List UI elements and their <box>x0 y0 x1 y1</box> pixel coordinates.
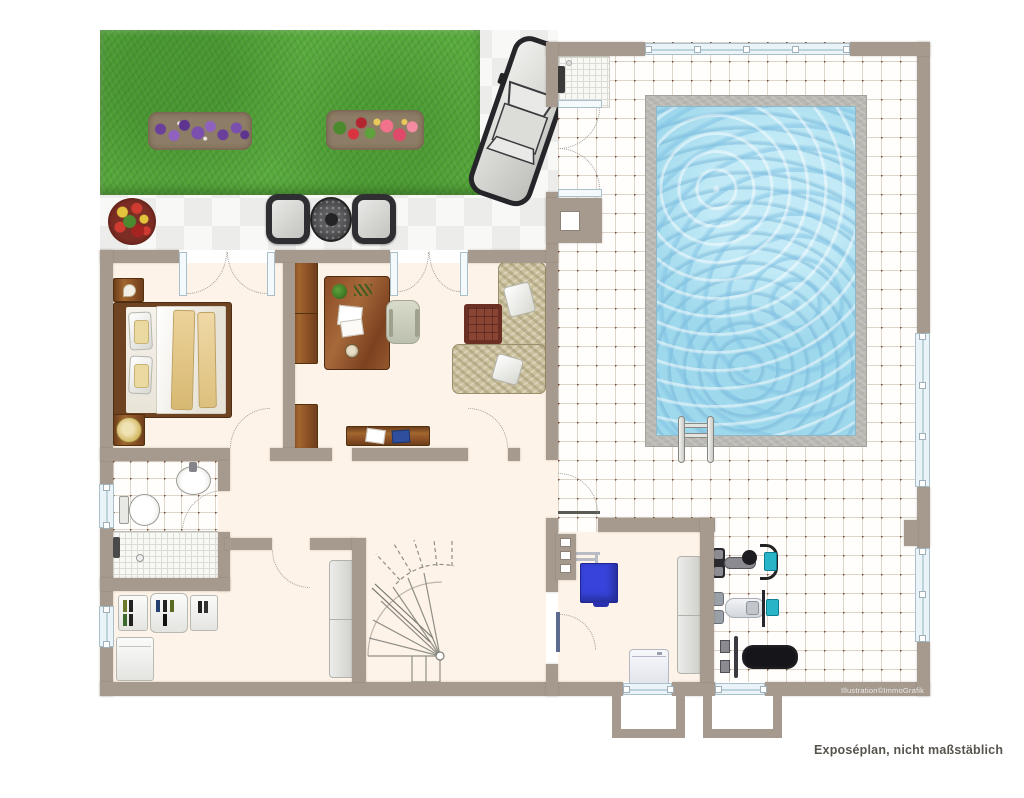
rack-post <box>720 640 730 653</box>
machine-panel-line <box>632 656 666 657</box>
chair-seat <box>272 200 304 238</box>
rack-post <box>720 660 730 673</box>
window-mullion <box>103 522 110 529</box>
wall <box>700 518 714 682</box>
window-mullion <box>919 480 926 487</box>
window-mullion <box>103 606 110 613</box>
shoes-icon <box>122 599 144 627</box>
chair-armrest <box>389 309 393 337</box>
window <box>715 683 765 695</box>
wall <box>672 682 715 696</box>
wall <box>917 487 930 548</box>
window-mullion <box>919 635 926 642</box>
utility-cabinet <box>677 556 702 674</box>
plan-caption: Exposéplan, nicht maßstäblich <box>814 743 1003 757</box>
office-chair <box>386 300 420 344</box>
window <box>99 606 114 647</box>
bed-blanket <box>171 310 196 411</box>
door-leaf <box>558 100 602 108</box>
window-mullion <box>919 433 926 440</box>
bike-seat <box>742 550 757 565</box>
bike-display <box>764 552 777 571</box>
flower-pot <box>108 198 156 245</box>
wall <box>218 461 230 491</box>
wall <box>100 682 623 696</box>
pool-ladder-rung <box>684 423 708 428</box>
wall <box>275 250 390 263</box>
rower-rail <box>725 598 765 618</box>
window-mullion <box>645 46 652 53</box>
toilet-icon <box>119 496 129 524</box>
boiler-tab <box>593 602 609 607</box>
rower-seat <box>746 601 759 615</box>
pool-ladder-rail <box>707 416 714 463</box>
bike-pedal <box>714 567 723 576</box>
terrace-chair-right <box>352 194 396 244</box>
light-well <box>612 696 685 738</box>
rowing-machine <box>710 590 786 628</box>
wall <box>310 538 354 550</box>
cabinet-divider <box>678 615 701 616</box>
wall <box>917 42 930 333</box>
exercise-bike <box>712 544 786 582</box>
machine-dial-icon <box>657 652 662 655</box>
door-leaf <box>558 189 602 197</box>
shower-drain-icon <box>566 60 572 66</box>
desk-papers <box>340 319 364 338</box>
wall <box>546 42 558 107</box>
wall-pier <box>904 520 918 546</box>
window-mullion <box>792 46 799 53</box>
wall <box>546 42 645 56</box>
sink-faucet-icon <box>189 462 197 472</box>
door-leaf <box>460 252 468 296</box>
barbell-bar <box>734 636 738 678</box>
table-lamp-icon <box>116 417 142 443</box>
winder-staircase <box>366 538 458 684</box>
chest-lid-line <box>119 646 151 647</box>
wall <box>546 263 558 460</box>
rower-display <box>766 599 779 616</box>
bathroom-shower-floor <box>113 531 218 578</box>
shoes-icon <box>155 599 183 627</box>
desk-mug-icon <box>345 344 359 358</box>
window-mullion <box>760 686 767 693</box>
light-well <box>703 696 782 738</box>
wall <box>850 42 930 56</box>
window-mullion <box>919 333 926 340</box>
wall <box>100 578 230 591</box>
wall <box>100 528 113 606</box>
window-band <box>645 43 850 55</box>
window <box>623 683 672 695</box>
desk-pens-icon <box>354 284 372 296</box>
flower-bed-red <box>326 110 424 150</box>
table-center <box>325 213 338 226</box>
floor-plan: Illustration©ImmoGrafik Exposéplan, nich… <box>0 0 1024 798</box>
wall <box>283 263 295 448</box>
decor-shell <box>123 284 136 297</box>
nightstand <box>113 278 144 302</box>
window-mullion <box>623 686 630 693</box>
corridor-opening <box>546 460 558 518</box>
chimney-flue <box>560 538 571 547</box>
door-leaf <box>267 252 275 296</box>
sideboard-paper <box>365 428 386 445</box>
rower-frame-bar <box>762 590 765 627</box>
terrace-table <box>310 197 352 242</box>
window <box>915 548 930 642</box>
wall <box>352 448 468 461</box>
pool-ladder-rung <box>684 433 708 438</box>
wall <box>598 518 715 532</box>
window-mullion <box>667 686 674 693</box>
window-mullion <box>843 46 850 53</box>
window-mullion <box>919 382 926 389</box>
window-mullion <box>103 484 110 491</box>
storage-chest <box>116 637 154 681</box>
coffee-table <box>464 304 502 344</box>
wall <box>270 448 332 461</box>
sideboard <box>346 426 430 446</box>
window-mullion <box>103 641 110 648</box>
wall <box>100 448 230 461</box>
bench-pad <box>742 645 798 669</box>
door-leaf <box>179 252 187 296</box>
window-mullion <box>715 686 722 693</box>
boiler <box>580 563 618 603</box>
wall-stub <box>508 448 520 461</box>
door-leaf <box>390 252 398 296</box>
bike-pedal <box>714 550 723 559</box>
toilet-bowl-icon <box>129 494 160 526</box>
chimney-flue <box>560 551 571 560</box>
window-mullion <box>743 46 750 53</box>
shower-fixture-icon <box>557 66 565 93</box>
watermark: Illustration©ImmoGrafik <box>841 686 924 695</box>
window-mullion <box>919 548 926 555</box>
chair-seat <box>358 200 390 238</box>
swimming-pool-water <box>656 106 856 436</box>
wall <box>225 538 272 550</box>
chair-armrest <box>415 309 419 337</box>
flower-bed-purple <box>148 112 252 150</box>
cabinet-divider <box>330 619 354 620</box>
wall <box>546 664 558 696</box>
bed-cushion-yellow <box>134 320 149 344</box>
bed-blanket <box>197 312 217 408</box>
window <box>915 333 930 487</box>
shoes-icon <box>196 600 214 626</box>
chimney-flue <box>560 211 580 231</box>
bed-cushion-yellow <box>134 364 149 388</box>
shower-drain-icon <box>136 554 144 562</box>
wall <box>468 250 558 263</box>
shower-fixture-icon <box>113 537 120 558</box>
desk-plant-icon <box>332 284 347 299</box>
chimney-flue <box>560 564 571 573</box>
window <box>99 484 114 528</box>
terrace-chair-left <box>266 194 310 244</box>
window-mullion <box>694 46 701 53</box>
wall <box>352 538 366 682</box>
window-mullion <box>919 591 926 598</box>
weight-bench <box>718 636 798 678</box>
sideboard-folder <box>392 429 411 443</box>
